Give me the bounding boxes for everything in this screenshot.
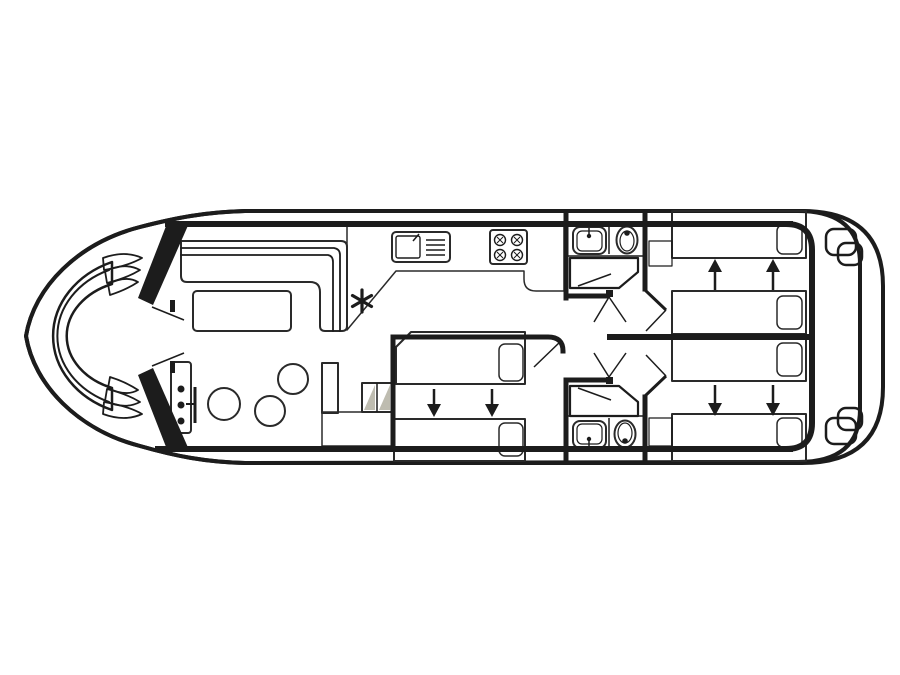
galley-counter [347,226,564,330]
door-swing-icon [152,353,184,366]
shower-icon [570,258,638,288]
bed [672,291,806,334]
sofa-backrest-line [181,248,340,331]
saloon-table [193,291,291,331]
stool [278,364,308,394]
cabinet [649,241,672,266]
stool [208,388,240,420]
stairs-shade [379,385,390,410]
bed [394,419,525,461]
cabinet [649,418,672,446]
toilet-icon [617,227,638,254]
bed [672,414,806,461]
shower-door-line [578,274,611,286]
bed [672,338,806,381]
sofa-backrest-line [181,255,333,331]
washbasin-icon [573,421,606,448]
bed [672,211,806,258]
helm-instrument-dot [178,418,185,425]
bed-pillow [777,418,802,447]
bow-door-leaf [170,361,175,373]
boat-floor-plan [0,0,900,675]
door-swing-icon [152,307,184,320]
boat-floor-plan-canvas [0,0,900,675]
bow-bulkhead [138,221,190,305]
shower-door-line [578,388,611,400]
bow-steps-port [103,254,142,295]
stove-icon [490,230,527,264]
bed-pillow [777,343,802,376]
sink-icon [392,232,450,262]
bed-pillow [777,296,802,329]
helm-instrument-dot [178,386,185,393]
washbasin-icon [573,227,606,254]
toilet-icon [615,421,636,448]
bow-bench-seat-line [57,270,109,402]
galley-cabinet [322,412,392,446]
helm-instrument-dot [178,402,185,409]
shower-icon [570,386,638,416]
bed [396,332,525,384]
bow-steps-starboard [103,377,142,418]
stairs-shade [364,385,375,410]
heater-symbol [353,290,372,312]
bed-pillow [499,344,523,381]
bow-door-leaf [170,300,175,312]
stool [255,396,285,426]
bed-pillow [777,225,802,254]
bow-bulkhead [138,368,190,452]
wall-midcabin-top [393,337,563,351]
partition-wall [322,363,338,413]
